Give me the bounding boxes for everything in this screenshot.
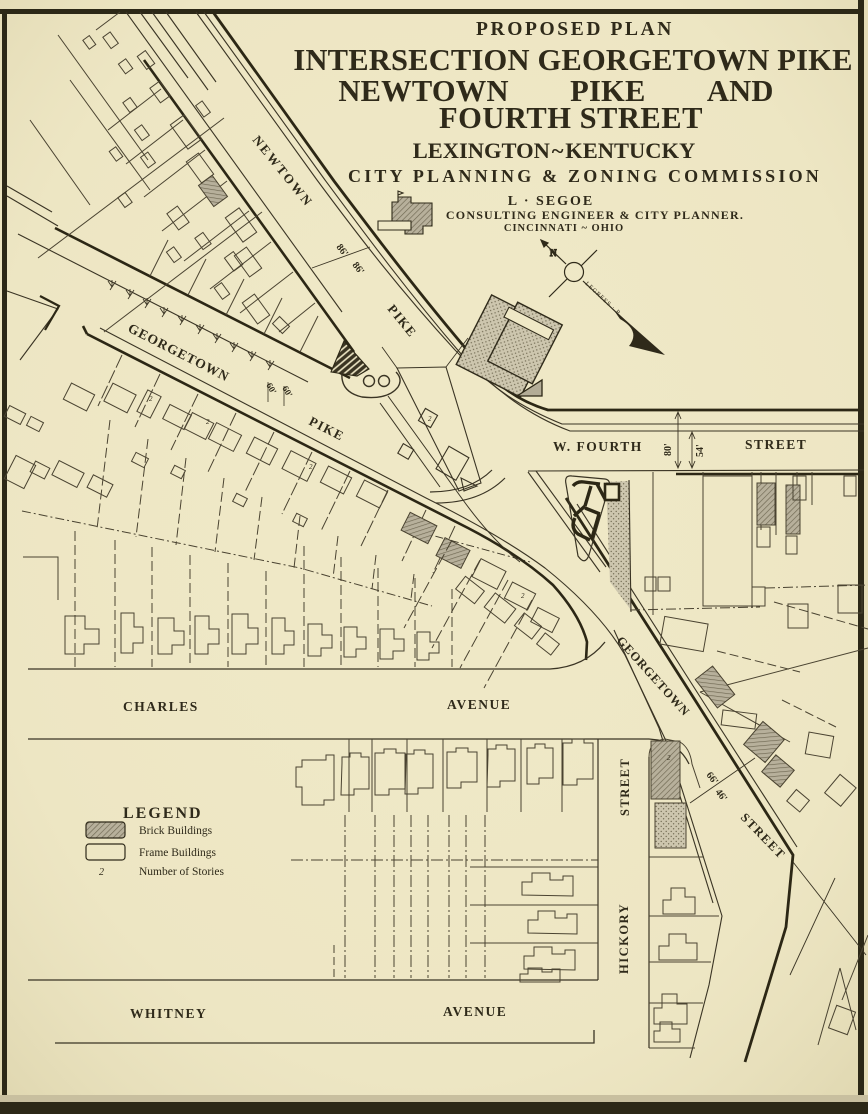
svg-text:54': 54' xyxy=(695,444,706,457)
svg-text:L · SEGOE: L · SEGOE xyxy=(508,194,594,209)
svg-text:AVENUE: AVENUE xyxy=(447,697,511,712)
svg-text:FOURTH STREET: FOURTH STREET xyxy=(439,101,703,135)
svg-text:Frame Buildings: Frame Buildings xyxy=(139,847,217,859)
svg-text:Number of Stories: Number of Stories xyxy=(139,866,224,878)
svg-text:LEGEND: LEGEND xyxy=(123,805,203,822)
svg-text:AVENUE: AVENUE xyxy=(443,1004,507,1019)
svg-text:STREET: STREET xyxy=(745,437,807,452)
svg-text:2: 2 xyxy=(149,395,153,403)
svg-text:80': 80' xyxy=(663,443,674,456)
svg-text:2: 2 xyxy=(309,463,313,471)
svg-text:STREET: STREET xyxy=(618,758,632,816)
svg-text:2: 2 xyxy=(206,418,210,426)
svg-text:2: 2 xyxy=(428,415,432,423)
svg-text:CONSULTING ENGINEER & CITY PLA: CONSULTING ENGINEER & CITY PLANNER. xyxy=(446,208,744,222)
svg-text:PROPOSED PLAN: PROPOSED PLAN xyxy=(476,19,674,40)
svg-text:Brick Buildings: Brick Buildings xyxy=(139,825,213,837)
svg-text:2: 2 xyxy=(521,592,525,600)
svg-text:WHITNEY: WHITNEY xyxy=(130,1006,207,1021)
svg-text:CITY PLANNING & ZONING COMMISS: CITY PLANNING & ZONING COMMISSION xyxy=(348,166,822,186)
svg-text:2: 2 xyxy=(667,754,671,762)
svg-text:HICKORY: HICKORY xyxy=(617,903,631,974)
svg-text:INTERSECTION GEORGETOWN PIKE: INTERSECTION GEORGETOWN PIKE xyxy=(293,43,852,77)
svg-text:W. FOURTH: W. FOURTH xyxy=(553,439,643,454)
svg-text:N: N xyxy=(550,248,557,258)
svg-text:LEXINGTON ~ KENTUCKY: LEXINGTON ~ KENTUCKY xyxy=(413,138,696,163)
svg-text:CINCINNATI ~ OHIO: CINCINNATI ~ OHIO xyxy=(504,223,624,234)
svg-text:2: 2 xyxy=(99,867,104,878)
svg-text:CHARLES: CHARLES xyxy=(123,699,199,714)
